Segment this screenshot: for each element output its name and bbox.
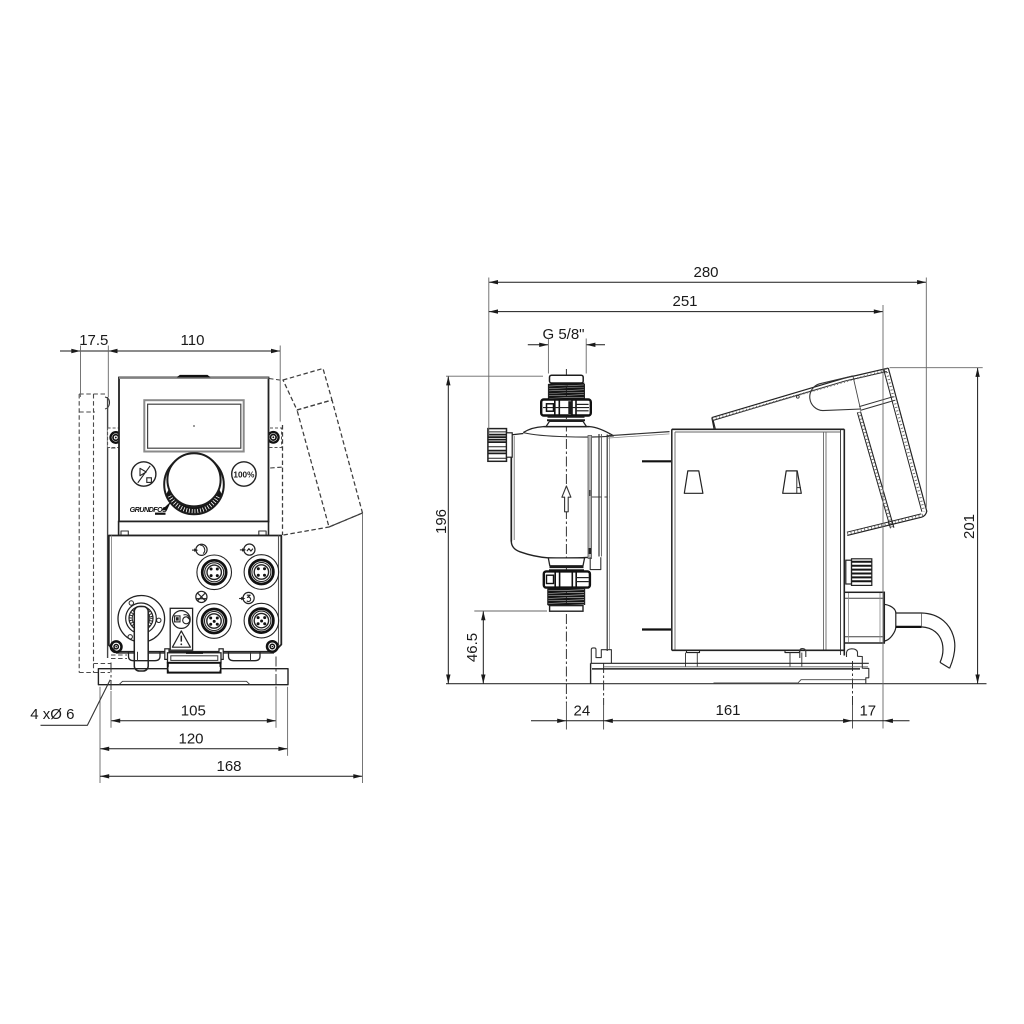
svg-text:17.5: 17.5 <box>79 332 108 349</box>
svg-text:201: 201 <box>961 514 978 539</box>
svg-text:196: 196 <box>433 509 450 534</box>
svg-text:105: 105 <box>181 702 206 719</box>
svg-text:251: 251 <box>672 293 697 310</box>
svg-text:4 xØ 6: 4 xØ 6 <box>30 706 74 723</box>
svg-text:120: 120 <box>178 730 203 747</box>
svg-text:280: 280 <box>693 264 718 281</box>
svg-text:24: 24 <box>574 702 591 719</box>
svg-text:161: 161 <box>715 702 740 719</box>
svg-text:17: 17 <box>859 702 876 719</box>
svg-text:100%: 100% <box>233 470 255 479</box>
svg-text:168: 168 <box>216 758 241 775</box>
svg-text:46.5: 46.5 <box>464 633 481 662</box>
svg-text:110: 110 <box>181 332 205 349</box>
